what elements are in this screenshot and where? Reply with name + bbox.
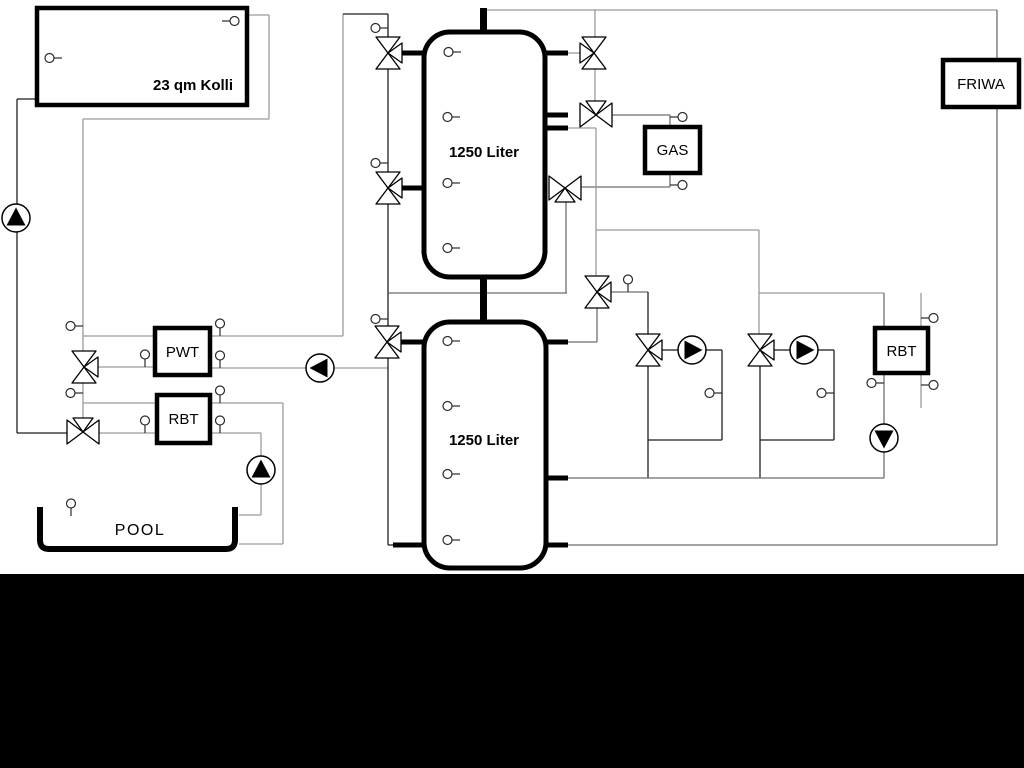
three-way-valve-icon bbox=[585, 276, 611, 308]
temperature-sensor-icon bbox=[817, 389, 834, 398]
three-way-valve-icon bbox=[580, 37, 606, 69]
temperature-sensor-icon bbox=[705, 389, 722, 398]
rbt-right-label: RBT bbox=[887, 343, 917, 360]
three-way-valve-icon bbox=[376, 172, 402, 204]
rbt-right-pump-icon bbox=[870, 424, 898, 452]
temperature-sensor-icon bbox=[670, 181, 687, 190]
pool-label: POOL bbox=[115, 522, 165, 539]
circuit1-pump-icon bbox=[678, 336, 706, 364]
pwt-pump-icon bbox=[306, 354, 334, 382]
temperature-sensor-icon bbox=[66, 322, 83, 331]
hydraulic-schematic-screen: 23 qm Kolli 1250 Liter 1250 Liter PWT RB… bbox=[0, 0, 1024, 768]
three-way-valve-icon bbox=[549, 176, 581, 202]
temperature-sensor-icon bbox=[670, 113, 687, 122]
temperature-sensor-icon bbox=[371, 24, 388, 33]
footer-bar bbox=[0, 574, 1024, 768]
three-way-valve-icon bbox=[580, 101, 612, 127]
temperature-sensor-icon bbox=[67, 499, 76, 516]
temperature-sensor-icon bbox=[216, 416, 225, 433]
hydraulic-schematic: 23 qm Kolli 1250 Liter 1250 Liter PWT RB… bbox=[0, 0, 1024, 768]
temperature-sensor-icon bbox=[624, 275, 633, 292]
solar-pump-icon bbox=[2, 204, 30, 232]
temperature-sensor-icon bbox=[66, 389, 83, 398]
three-way-valve-icon bbox=[375, 326, 401, 358]
temperature-sensor-icon bbox=[921, 381, 938, 390]
temperature-sensor-icon bbox=[216, 351, 225, 368]
temperature-sensor-icon bbox=[867, 379, 884, 388]
three-way-valve-icon bbox=[72, 351, 98, 383]
temperature-sensor-icon bbox=[141, 416, 150, 433]
temperature-sensor-icon bbox=[216, 319, 225, 336]
three-way-valve-icon bbox=[376, 37, 402, 69]
three-way-valve-icon bbox=[67, 418, 99, 444]
temperature-sensor-icon bbox=[216, 386, 225, 403]
collector-label: 23 qm Kolli bbox=[153, 77, 233, 94]
temperature-sensor-icon bbox=[371, 159, 388, 168]
friwa-label: FRIWA bbox=[957, 76, 1005, 93]
three-way-valve-icon bbox=[636, 334, 662, 366]
temperature-sensor-icon bbox=[141, 350, 150, 367]
pwt-label: PWT bbox=[166, 344, 199, 361]
rbt-left-label: RBT bbox=[169, 411, 199, 428]
circuit2-pump-icon bbox=[790, 336, 818, 364]
pool-pump-icon bbox=[247, 456, 275, 484]
gas-label: GAS bbox=[657, 142, 689, 159]
tank-lower-label: 1250 Liter bbox=[449, 432, 519, 449]
temperature-sensor-icon bbox=[371, 315, 388, 324]
three-way-valve-icon bbox=[748, 334, 774, 366]
temperature-sensor-icon bbox=[921, 314, 938, 323]
tank-upper-label: 1250 Liter bbox=[449, 144, 519, 161]
